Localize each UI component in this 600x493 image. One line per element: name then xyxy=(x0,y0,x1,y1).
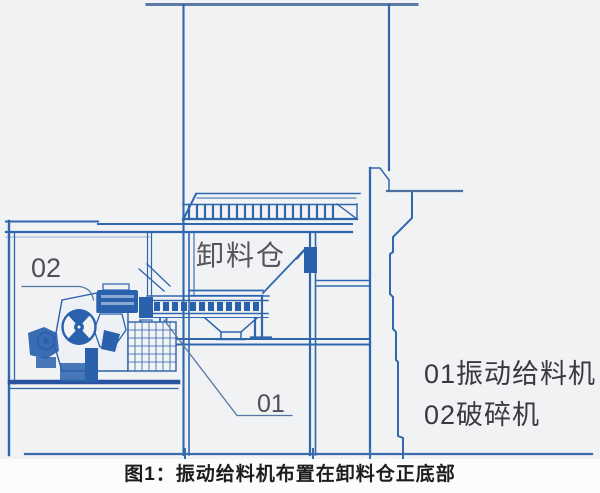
legend-item-feeder: 01振动给料机 xyxy=(424,359,596,389)
left-machine-mass xyxy=(28,327,59,359)
discharge-funnel xyxy=(205,318,257,340)
funnel-walls xyxy=(205,318,257,332)
motor-top-box xyxy=(103,284,129,290)
transfer-chute-lines xyxy=(139,264,170,291)
legend-item-crusher: 02破碎机 xyxy=(424,400,540,430)
chute-dark-block xyxy=(139,297,153,318)
motor-block xyxy=(97,290,138,313)
wall-outer-step-profile xyxy=(390,193,412,455)
grating-platform xyxy=(183,194,360,221)
flywheel-axle xyxy=(78,326,81,329)
wall-top-chamfer xyxy=(370,168,389,191)
callout-02: 02 xyxy=(22,253,94,300)
motor-fin-1 xyxy=(101,295,134,298)
pedestal-column xyxy=(85,348,98,382)
ground-line-group xyxy=(25,449,592,460)
grating-right-end xyxy=(337,204,357,219)
feeder-deck-dashes xyxy=(154,302,259,311)
ceiling-band-upper xyxy=(6,222,352,225)
bin-label: 卸料仓 xyxy=(196,240,286,271)
motor-fin-2 xyxy=(101,302,134,305)
upper-tie-beam xyxy=(317,281,370,287)
grating-bars xyxy=(189,205,333,219)
figure-caption: 图1：振动给料机布置在卸料仓正底部 xyxy=(124,462,456,485)
upper-building-outline xyxy=(147,5,417,456)
legend: 01振动给料机 02破碎机 xyxy=(424,359,596,430)
pedestal-base xyxy=(60,363,85,382)
figure-container: 01 02 卸料仓 01振动给料机 02破碎机 图1：振动给料机布置在卸料仓正底… xyxy=(0,0,600,493)
callout-01-number: 01 xyxy=(257,390,285,418)
left-machine-foot xyxy=(36,357,56,368)
technical-drawing: 01 02 卸料仓 01振动给料机 02破碎机 图1：振动给料机布置在卸料仓正底… xyxy=(0,0,600,493)
callout-02-number: 02 xyxy=(31,253,61,283)
bin-gate-block xyxy=(304,247,317,273)
